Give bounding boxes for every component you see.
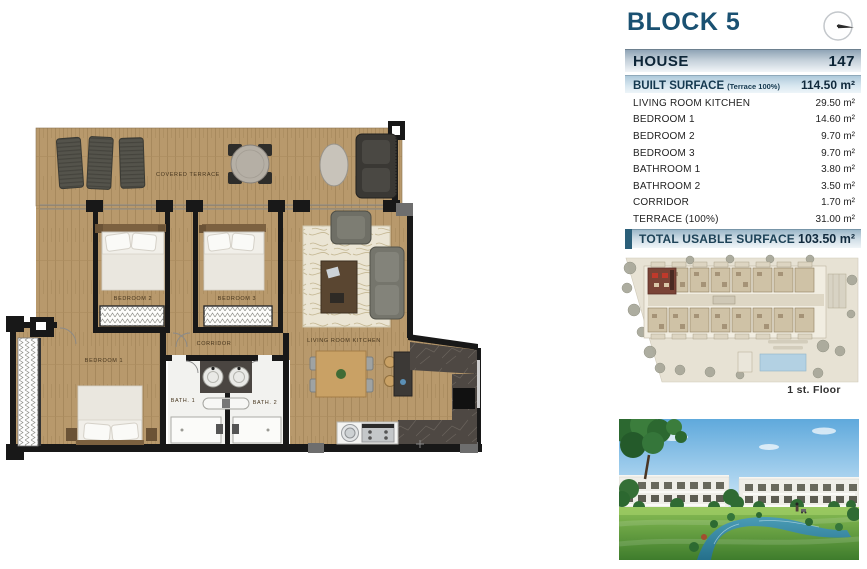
- room-label-corridor: CORRIDOR: [197, 341, 232, 347]
- living-room-furniture: [303, 211, 404, 327]
- total-usable-surface-bar: TOTAL USABLE SURFACE 103.50 m²: [625, 229, 861, 248]
- site-plan-faint-text: [768, 340, 808, 344]
- table-row: BATHROOM 1 3.80 m²: [625, 161, 861, 178]
- site-amenity-building: [738, 352, 752, 372]
- built-surface-note: (Terrace 100%): [727, 82, 780, 91]
- built-surface-bar: BUILT SURFACE(Terrace 100%) 114.50 m²: [625, 75, 861, 93]
- room-label-covered-terrace: COVERED TERRACE: [156, 172, 220, 178]
- table-row: BEDROOM 2 9.70 m²: [625, 128, 861, 145]
- floor-label: 1 st. Floor: [787, 384, 840, 396]
- floor-plan-image: COVERED TERRACE BEDROOM 2 BEDROOM 3 CORR…: [0, 0, 610, 569]
- surface-rows: LIVING ROOM KITCHEN 29.50 m² BEDROOM 1 1…: [625, 95, 861, 228]
- table-row: CORRIDOR 1.70 m²: [625, 195, 861, 212]
- room-label-bath-1: BATH. 1: [171, 398, 196, 404]
- table-row: TERRACE (100%) 31.00 m²: [625, 211, 861, 228]
- outdoor-sofa: [356, 134, 397, 198]
- house-number: 147: [828, 53, 855, 70]
- site-pool: [760, 354, 806, 371]
- table-row: BEDROOM 1 14.60 m²: [625, 112, 861, 129]
- house-header-bar: HOUSE 147: [625, 49, 861, 72]
- table-row: BATHROOM 2 3.50 m²: [625, 178, 861, 195]
- compass-icon: [820, 8, 856, 44]
- room-label-bedroom-1: BEDROOM 1: [85, 358, 123, 364]
- bedroom-3-furniture: [199, 224, 272, 326]
- house-label: HOUSE: [633, 53, 689, 70]
- room-label-living-room-kitchen: LIVING ROOM KITCHEN: [307, 338, 381, 344]
- total-label: TOTAL USABLE SURFACE: [639, 232, 795, 246]
- round-dining-table: [228, 144, 272, 184]
- built-surface-label: BUILT SURFACE: [633, 80, 724, 92]
- built-surface-value: 114.50 m²: [801, 78, 855, 92]
- room-label-bath-2: BATH. 2: [253, 400, 278, 406]
- room-label-bedroom-2: BEDROOM 2: [114, 296, 152, 302]
- site-plan-image: 1 st. Floor: [618, 254, 862, 404]
- bedroom-2-furniture: [95, 224, 166, 326]
- table-row: LIVING ROOM KITCHEN 29.50 m²: [625, 95, 861, 112]
- block-title: BLOCK 5: [627, 8, 740, 37]
- highlighted-unit: [648, 268, 676, 294]
- site-building: [644, 262, 846, 339]
- room-label-bedroom-3: BEDROOM 3: [218, 296, 256, 302]
- total-value: 103.50 m²: [798, 232, 855, 246]
- brochure-page: COVERED TERRACE BEDROOM 2 BEDROOM 3 CORR…: [0, 0, 867, 569]
- table-row: BEDROOM 3 9.70 m²: [625, 145, 861, 162]
- building-render-photo: [619, 419, 859, 560]
